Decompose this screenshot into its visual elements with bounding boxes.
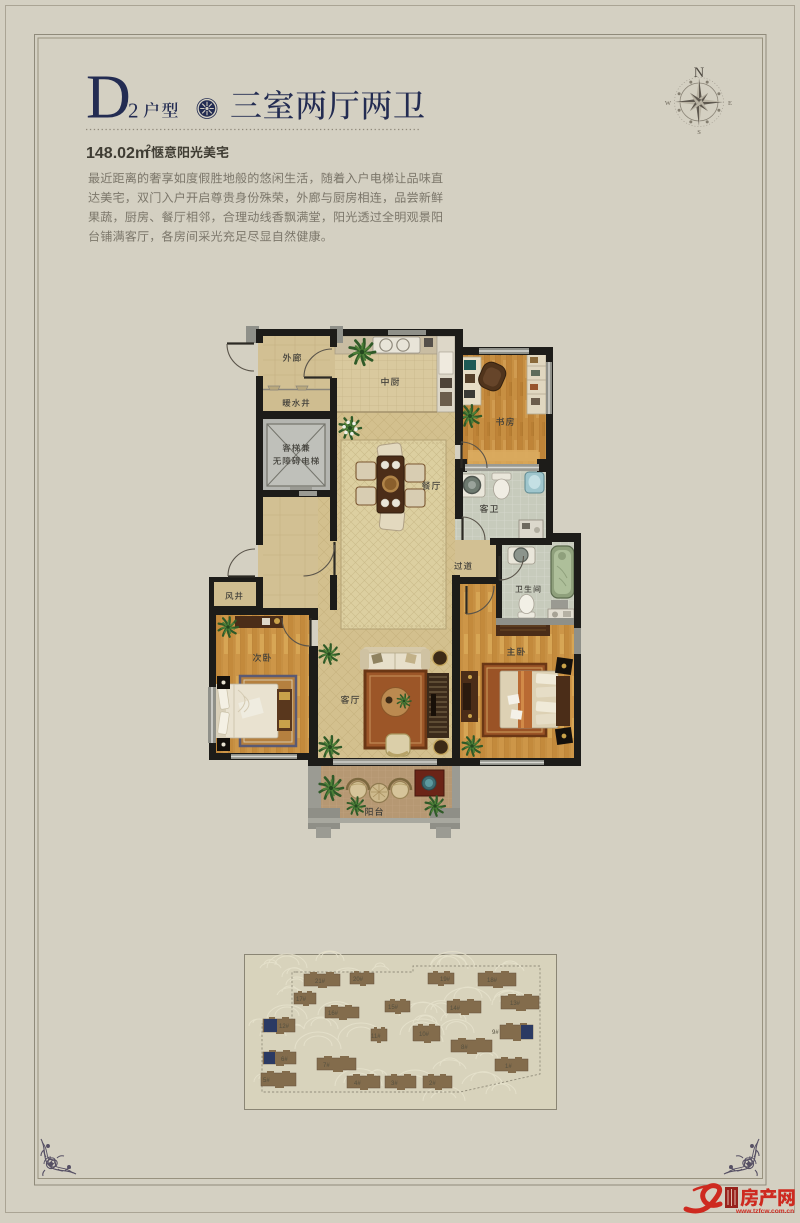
svg-text:17#: 17#: [296, 997, 307, 1003]
svg-text:5#: 5#: [263, 1078, 270, 1084]
svg-text:9#: 9#: [492, 1030, 499, 1036]
svg-text:2: 2: [146, 143, 151, 153]
svg-text:10#: 10#: [419, 1032, 430, 1038]
svg-text:www.tzfcw.com.cn: www.tzfcw.com.cn: [735, 1208, 794, 1215]
svg-text:8#: 8#: [461, 1045, 468, 1051]
svg-text:D: D: [86, 64, 131, 132]
svg-text:11#: 11#: [371, 1034, 381, 1040]
svg-text:2: 2: [128, 99, 139, 123]
svg-text:W: W: [665, 100, 672, 107]
svg-text:15#: 15#: [388, 1005, 399, 1011]
svg-text:12#: 12#: [279, 1024, 290, 1030]
svg-text:S: S: [697, 129, 701, 136]
svg-text:18#: 18#: [487, 978, 498, 984]
svg-text:13#: 13#: [510, 1001, 521, 1007]
svg-text:20#: 20#: [353, 977, 364, 983]
svg-text:7#: 7#: [323, 1063, 330, 1069]
svg-text:1#: 1#: [505, 1064, 512, 1070]
svg-text:16#: 16#: [328, 1011, 339, 1017]
svg-text:E: E: [728, 100, 732, 107]
svg-text:2#: 2#: [429, 1081, 436, 1087]
svg-text:19#: 19#: [440, 977, 451, 983]
svg-text:21#: 21#: [315, 979, 326, 985]
svg-text:6#: 6#: [281, 1057, 288, 1063]
svg-text:148.02m: 148.02m: [86, 145, 149, 162]
svg-text:4#: 4#: [354, 1081, 361, 1087]
svg-text:3#: 3#: [391, 1081, 398, 1087]
svg-text:14#: 14#: [450, 1006, 461, 1012]
svg-text:N: N: [694, 65, 705, 81]
